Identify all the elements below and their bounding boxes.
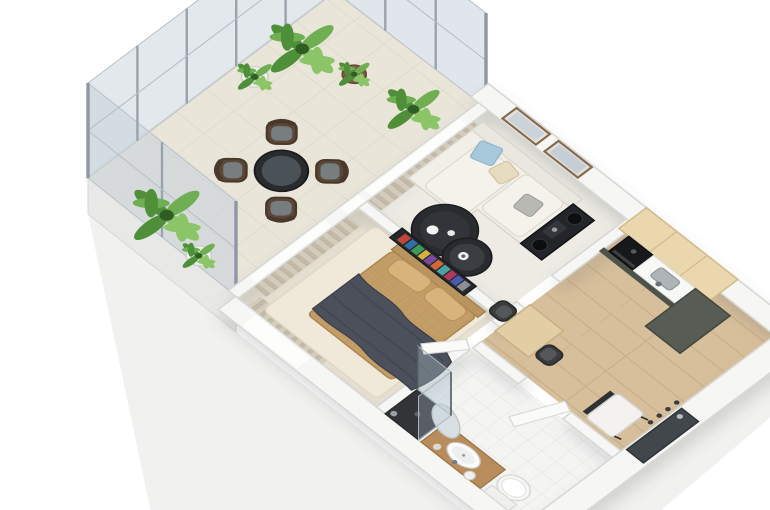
wicker-chair — [316, 160, 346, 183]
floor-plan-render — [0, 0, 770, 510]
wicker-chair — [216, 159, 246, 182]
wicker-chair — [267, 121, 297, 144]
floor-plan-stage — [0, 0, 770, 510]
wicker-chair — [266, 197, 296, 220]
